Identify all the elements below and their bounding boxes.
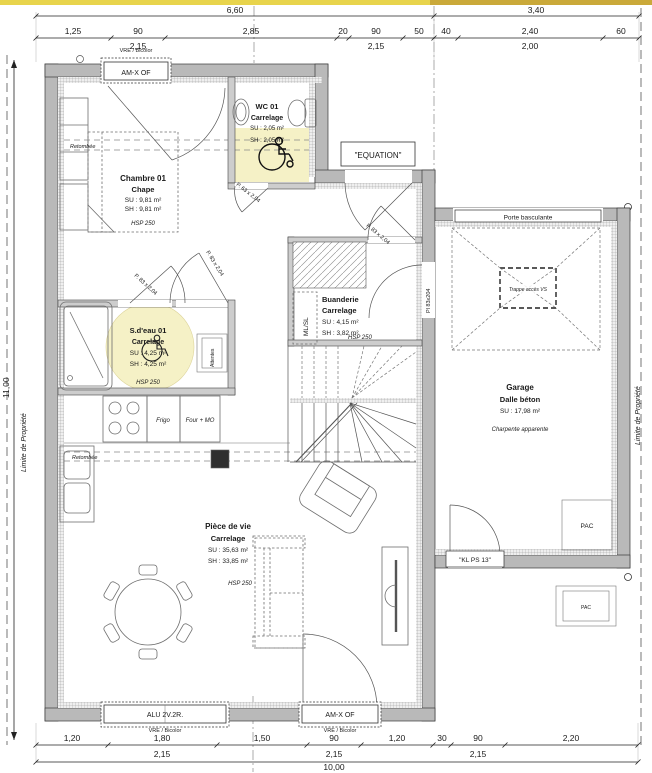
pac-outdoor-label: PAC	[581, 605, 591, 611]
roof-hip3	[452, 308, 500, 350]
piece-label: Pièce de vie Carrelage SU : 35,63 m² SH …	[205, 522, 252, 587]
dim-b1-1: 1,80	[154, 733, 171, 743]
toilet-bowl	[288, 100, 306, 126]
dim-b1-2: 1,50	[254, 733, 271, 743]
chambre-hall-door-label: P. 83 x 2,04	[204, 250, 224, 277]
buanderie-name: Buanderie	[322, 295, 359, 304]
boundary-marker-garage-bottom	[625, 574, 632, 581]
garage-su: SU : 17,98 m²	[500, 408, 541, 415]
hatch-right	[416, 183, 422, 708]
gap-chambre-sdeau-door	[118, 300, 172, 307]
wardrobe	[60, 98, 88, 180]
window-top-swing-arc	[172, 88, 225, 160]
chambre-floor: Chape	[132, 185, 155, 194]
retombee-bottom-label: Retombée	[72, 455, 97, 461]
dim-t3-2: 2,00	[522, 41, 539, 51]
stair-lower-flight	[296, 403, 416, 462]
sdeau-hsp: HSP 250	[136, 380, 160, 386]
retombee-top-label: Retombée	[70, 144, 95, 150]
stair-landing-band	[290, 398, 416, 403]
burner1	[109, 402, 121, 414]
dresser	[60, 184, 88, 230]
sdeau-sh: SH : 4,25 m²	[130, 361, 167, 368]
wall-garage-right	[617, 208, 630, 568]
stair-fan-s4	[350, 403, 416, 448]
wc-floor: Carrelage	[251, 115, 283, 122]
wc-sh: SH : 2,05 m²	[250, 138, 284, 144]
dim-t2-2: 2,85	[243, 26, 260, 36]
floor-plan-drawing: Limite de Propriété Limite de Propriété …	[0, 0, 652, 773]
chambre-hsp: HSP 250	[131, 221, 155, 227]
burner2	[127, 402, 139, 414]
wc-sink-bowl	[236, 103, 246, 121]
garage-int-door-label: Pl 83x204	[426, 289, 432, 313]
stair-fan-s1	[350, 403, 362, 462]
wc-accessible-zone	[235, 128, 309, 182]
sdeau-su: SU : 4,25 m²	[130, 350, 167, 357]
top-title-bar	[0, 0, 652, 5]
dim-340: 3,40	[528, 5, 545, 15]
stair-winder-d3	[352, 346, 402, 398]
dining-table	[115, 579, 181, 645]
oven-label: Four + MO	[186, 418, 215, 424]
dim-b2-0: 2,15	[154, 749, 171, 759]
structural-post	[211, 450, 229, 468]
wall-top	[45, 64, 328, 77]
roof-hip1	[452, 228, 500, 268]
living-furniture	[103, 457, 408, 659]
sdeau-floor: Carrelage	[132, 339, 164, 346]
dim-b1-7: 2,20	[563, 733, 580, 743]
dim-t2-7: 2,40	[522, 26, 539, 36]
dim-t2-4: 90	[371, 26, 381, 36]
garage-name: Garage	[506, 383, 534, 392]
entrance-door-leaf	[365, 183, 412, 230]
buanderie-closet	[293, 242, 366, 288]
chambre-name: Chambre 01	[120, 174, 166, 183]
wc-label: WC 01 Carrelage SU : 2,05 m² SH : 2,05 m…	[250, 102, 284, 144]
stair-winder-d2	[352, 346, 382, 398]
piece-floor: Carrelage	[211, 534, 246, 543]
roof-hip2	[556, 228, 600, 268]
roof-hip4	[556, 308, 600, 350]
buanderie-label: Buanderie Carrelage SU : 4,15 m² SH : 3,…	[322, 295, 372, 341]
partition-sdeau-bottom	[58, 388, 235, 395]
tv-lens	[385, 585, 396, 607]
floor-plan-page: Limite de Propriété Limite de Propriété …	[0, 0, 652, 773]
shower-drain	[68, 376, 73, 381]
pac-indoor-label: PAC	[581, 523, 594, 530]
dim-b1-5: 30	[437, 733, 447, 743]
window-top-swing-leaf	[108, 86, 172, 160]
dim-b1-3: 90	[329, 733, 339, 743]
klps13-door-arc	[450, 505, 500, 555]
wall-right	[422, 170, 435, 721]
sofa	[253, 536, 305, 648]
garage-note: Charpente apparente	[492, 427, 549, 433]
chambre-sh: SH : 9,81 m²	[125, 206, 162, 213]
dim-t2-8: 60	[616, 26, 626, 36]
gap-chambre-hall-door	[176, 300, 228, 307]
porte-basculante-label: Porte basculante	[504, 215, 553, 222]
chambre-sdeau-door-label: P. 83 x 2,04	[133, 273, 158, 297]
burner4	[127, 422, 139, 434]
gap-entrance	[345, 170, 412, 183]
garage-floor: Dalle béton	[500, 395, 541, 404]
armchair	[296, 457, 380, 536]
dim-b1-6: 90	[473, 733, 483, 743]
chair4	[139, 649, 157, 659]
buanderie-interior: ML/SL	[293, 242, 366, 344]
garage-int-door-arc	[369, 265, 422, 318]
partition-sdeau-right	[228, 300, 235, 395]
hatch-top	[58, 77, 322, 83]
dim-t2-0: 1,25	[65, 26, 82, 36]
partition-chambre-wc	[228, 77, 235, 183]
buanderie-floor: Carrelage	[322, 306, 357, 315]
entrance-label: "EQUATION"	[355, 151, 402, 160]
window-alu-label: ALU 2V.2R.	[147, 712, 183, 719]
attentes-label: Attentes	[210, 348, 216, 367]
piece-sh: SH : 33,85 m²	[208, 558, 249, 565]
window-amx-bottom-label: AM-X OF	[325, 712, 354, 719]
armchair-body	[296, 457, 380, 536]
stair-winder-d4	[352, 352, 416, 398]
dim-total: 10,00	[323, 762, 345, 772]
dim-660: 6,60	[227, 5, 244, 15]
klps13-label: "KL PS 13"	[459, 557, 492, 564]
ml-sl-label: ML/SL	[303, 317, 310, 336]
stair-winder-d1	[352, 346, 364, 398]
tv-unit	[382, 547, 408, 645]
dim-t2-3: 20	[338, 26, 348, 36]
boundary-marker-top-left	[77, 56, 84, 63]
sink-bowl2	[64, 483, 90, 513]
wc-name: WC 01	[256, 102, 279, 111]
entrance-door-arc	[345, 183, 365, 230]
dim-b2-1: 2,15	[326, 749, 343, 759]
left-dimension: 11,00	[1, 60, 17, 740]
hatch-entrance	[315, 183, 422, 189]
buanderie-door-leaf	[381, 206, 415, 240]
dim-t2-6: 40	[441, 26, 451, 36]
dim-left-total: 11,00	[1, 377, 11, 398]
limite-propriete-left-label: Limite de Propriété	[21, 413, 28, 472]
chambre-label: Chambre 01 Chape SU : 9,81 m² SH : 9,81 …	[120, 174, 166, 227]
dim-b1-4: 1,20	[389, 733, 406, 743]
dim-b1-0: 1,20	[64, 733, 81, 743]
armchair-back-line	[325, 477, 361, 499]
dim-b2-2: 2,15	[470, 749, 487, 759]
stair-upper-flight	[302, 346, 416, 398]
gap-buanderie-door	[368, 237, 415, 243]
dim-t3-0: 2,15	[130, 41, 147, 51]
dim-t2-5: 50	[414, 26, 424, 36]
trappe-label: Trappe accès VS	[509, 287, 548, 293]
bed-sheet-fold	[88, 205, 114, 232]
piece-hsp: HSP 250	[228, 581, 252, 587]
shower-diagonal	[70, 312, 103, 378]
piece-su: SU : 35,63 m²	[208, 547, 249, 554]
staircase	[290, 346, 416, 462]
chair1	[139, 565, 157, 575]
window-top-label: AM-X OF	[121, 70, 150, 77]
wall-left	[45, 64, 58, 721]
amx-bottom-door-arc	[303, 634, 377, 708]
stair-stringer1	[296, 403, 352, 462]
armchair-seat	[315, 464, 370, 517]
wc-su: SU : 2,05 m²	[250, 126, 284, 132]
stair-stringer2	[301, 403, 357, 462]
dim-t2-1: 90	[133, 26, 143, 36]
burner3	[109, 422, 121, 434]
chambre-su: SU : 9,81 m²	[125, 197, 162, 204]
limite-propriete-right-label: Limite de Propriété	[635, 386, 642, 445]
garage-label: Garage Dalle béton SU : 17,98 m² Charpen…	[492, 383, 549, 433]
sofa-arm-bottom	[253, 636, 305, 648]
sdeau-name: S.d'eau 01	[130, 326, 167, 335]
turning-circle-zone	[106, 303, 194, 391]
piece-name: Pièce de vie	[205, 522, 251, 531]
fridge-label: Frigo	[156, 418, 170, 424]
dim-t3-1: 2,15	[368, 41, 385, 51]
buanderie-su: SU : 4,15 m²	[322, 319, 359, 326]
buanderie-hsp: HSP 250	[348, 335, 372, 341]
cooktop	[103, 396, 147, 442]
stair-fan-s3	[350, 403, 402, 462]
